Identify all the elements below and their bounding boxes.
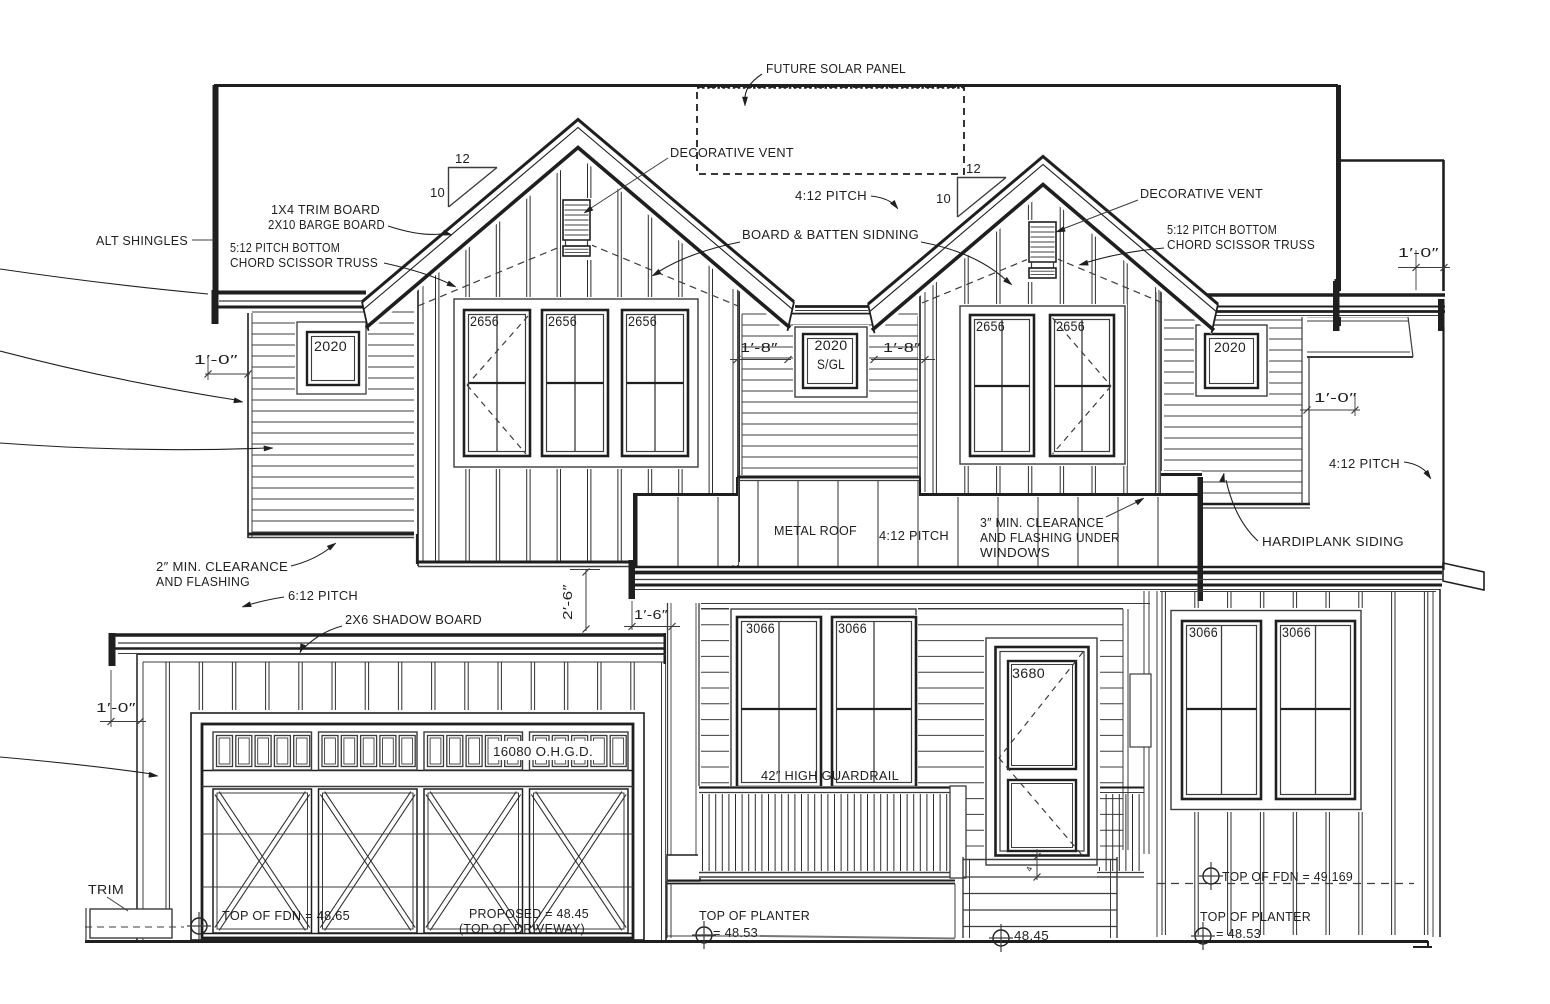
svg-text:ALT SHINGLES: ALT SHINGLES: [96, 233, 188, 248]
svg-text:CHORD SCISSOR TRUSS: CHORD SCISSOR TRUSS: [230, 255, 378, 270]
svg-text:FUTURE SOLAR PANEL: FUTURE SOLAR PANEL: [766, 61, 906, 76]
svg-text:TRIM: TRIM: [88, 882, 124, 897]
svg-text:1′-0″: 1′-0″: [194, 352, 238, 367]
svg-text:AND FLASHING UNDER: AND FLASHING UNDER: [980, 530, 1120, 545]
svg-text:4:12 PITCH: 4:12 PITCH: [879, 528, 949, 543]
svg-text:5:12 PITCH BOTTOM: 5:12 PITCH BOTTOM: [230, 240, 340, 255]
svg-text:2020: 2020: [314, 339, 347, 354]
svg-text:2656: 2656: [470, 314, 499, 329]
svg-text:2020: 2020: [815, 338, 848, 353]
svg-text:4:12 PITCH: 4:12 PITCH: [795, 188, 867, 203]
svg-text:CHORD SCISSOR TRUSS: CHORD SCISSOR TRUSS: [1167, 237, 1315, 252]
svg-text:1′-6″: 1′-6″: [634, 607, 668, 622]
svg-text:2656: 2656: [976, 319, 1005, 334]
svg-text:1′-0″: 1′-0″: [1398, 245, 1439, 260]
svg-text:AND FLASHING: AND FLASHING: [156, 574, 250, 589]
svg-text:PROPOSED = 48.45: PROPOSED = 48.45: [469, 906, 589, 921]
svg-text:TOP OF PLANTER: TOP OF PLANTER: [1200, 909, 1311, 924]
svg-text:1′-0″: 1′-0″: [96, 700, 136, 715]
svg-text:1X4 TRIM BOARD: 1X4 TRIM BOARD: [271, 202, 380, 217]
svg-text:S/GL: S/GL: [817, 357, 845, 372]
svg-text:6:12 PITCH: 6:12 PITCH: [288, 588, 358, 603]
svg-text:2X6 SHADOW BOARD: 2X6 SHADOW BOARD: [345, 612, 482, 627]
svg-text:2X10 BARGE BOARD: 2X10 BARGE BOARD: [268, 217, 385, 232]
svg-text:METAL ROOF: METAL ROOF: [774, 523, 857, 538]
svg-text:3066: 3066: [746, 621, 775, 636]
svg-text:2020: 2020: [1214, 340, 1246, 355]
svg-text:10: 10: [430, 185, 445, 200]
svg-text:TOP OF FDN = 48.65: TOP OF FDN = 48.65: [222, 908, 350, 923]
svg-text:3066: 3066: [838, 621, 867, 636]
svg-text:BOARD & BATTEN SIDNING: BOARD & BATTEN SIDNING: [742, 227, 919, 242]
svg-text:= 48.53: = 48.53: [713, 925, 758, 940]
svg-text:TOP OF FDN = 49.169: TOP OF FDN = 49.169: [1222, 869, 1353, 884]
svg-text:2′-6″: 2′-6″: [560, 584, 575, 620]
svg-text:4:12 PITCH: 4:12 PITCH: [1329, 456, 1400, 471]
svg-text:12: 12: [455, 151, 470, 166]
svg-text:HARDIPLANK SIDING: HARDIPLANK SIDING: [1262, 534, 1404, 549]
svg-text:DECORATIVE VENT: DECORATIVE VENT: [670, 145, 794, 160]
svg-text:WINDOWS: WINDOWS: [980, 545, 1050, 560]
svg-text:3680: 3680: [1012, 666, 1045, 681]
svg-text:1′-8″: 1′-8″: [883, 340, 921, 355]
svg-text:48.45: 48.45: [1014, 928, 1049, 943]
svg-text:2″ MIN. CLEARANCE: 2″ MIN. CLEARANCE: [156, 559, 288, 574]
svg-text:42″ HIGH GUARDRAIL: 42″ HIGH GUARDRAIL: [761, 768, 899, 783]
svg-text:3066: 3066: [1189, 625, 1218, 640]
svg-text:12: 12: [966, 161, 981, 176]
svg-text:DECORATIVE VENT: DECORATIVE VENT: [1140, 186, 1263, 201]
svg-text:5:12 PITCH BOTTOM: 5:12 PITCH BOTTOM: [1167, 222, 1277, 237]
svg-text:2656: 2656: [628, 314, 657, 329]
svg-text:3066: 3066: [1282, 625, 1311, 640]
svg-text:(TOP OF DRIVEWAY): (TOP OF DRIVEWAY): [459, 921, 585, 936]
svg-text:2656: 2656: [548, 314, 577, 329]
svg-text:3″ MIN. CLEARANCE: 3″ MIN. CLEARANCE: [980, 515, 1104, 530]
svg-text:16080 O.H.G.D.: 16080 O.H.G.D.: [493, 744, 593, 759]
svg-text:= 48.53: = 48.53: [1216, 926, 1261, 941]
svg-text:1′-0″: 1′-0″: [1314, 390, 1357, 405]
svg-text:10: 10: [936, 191, 951, 206]
svg-text:1′-8″: 1′-8″: [740, 340, 778, 355]
svg-text:TOP OF PLANTER: TOP OF PLANTER: [699, 908, 810, 923]
